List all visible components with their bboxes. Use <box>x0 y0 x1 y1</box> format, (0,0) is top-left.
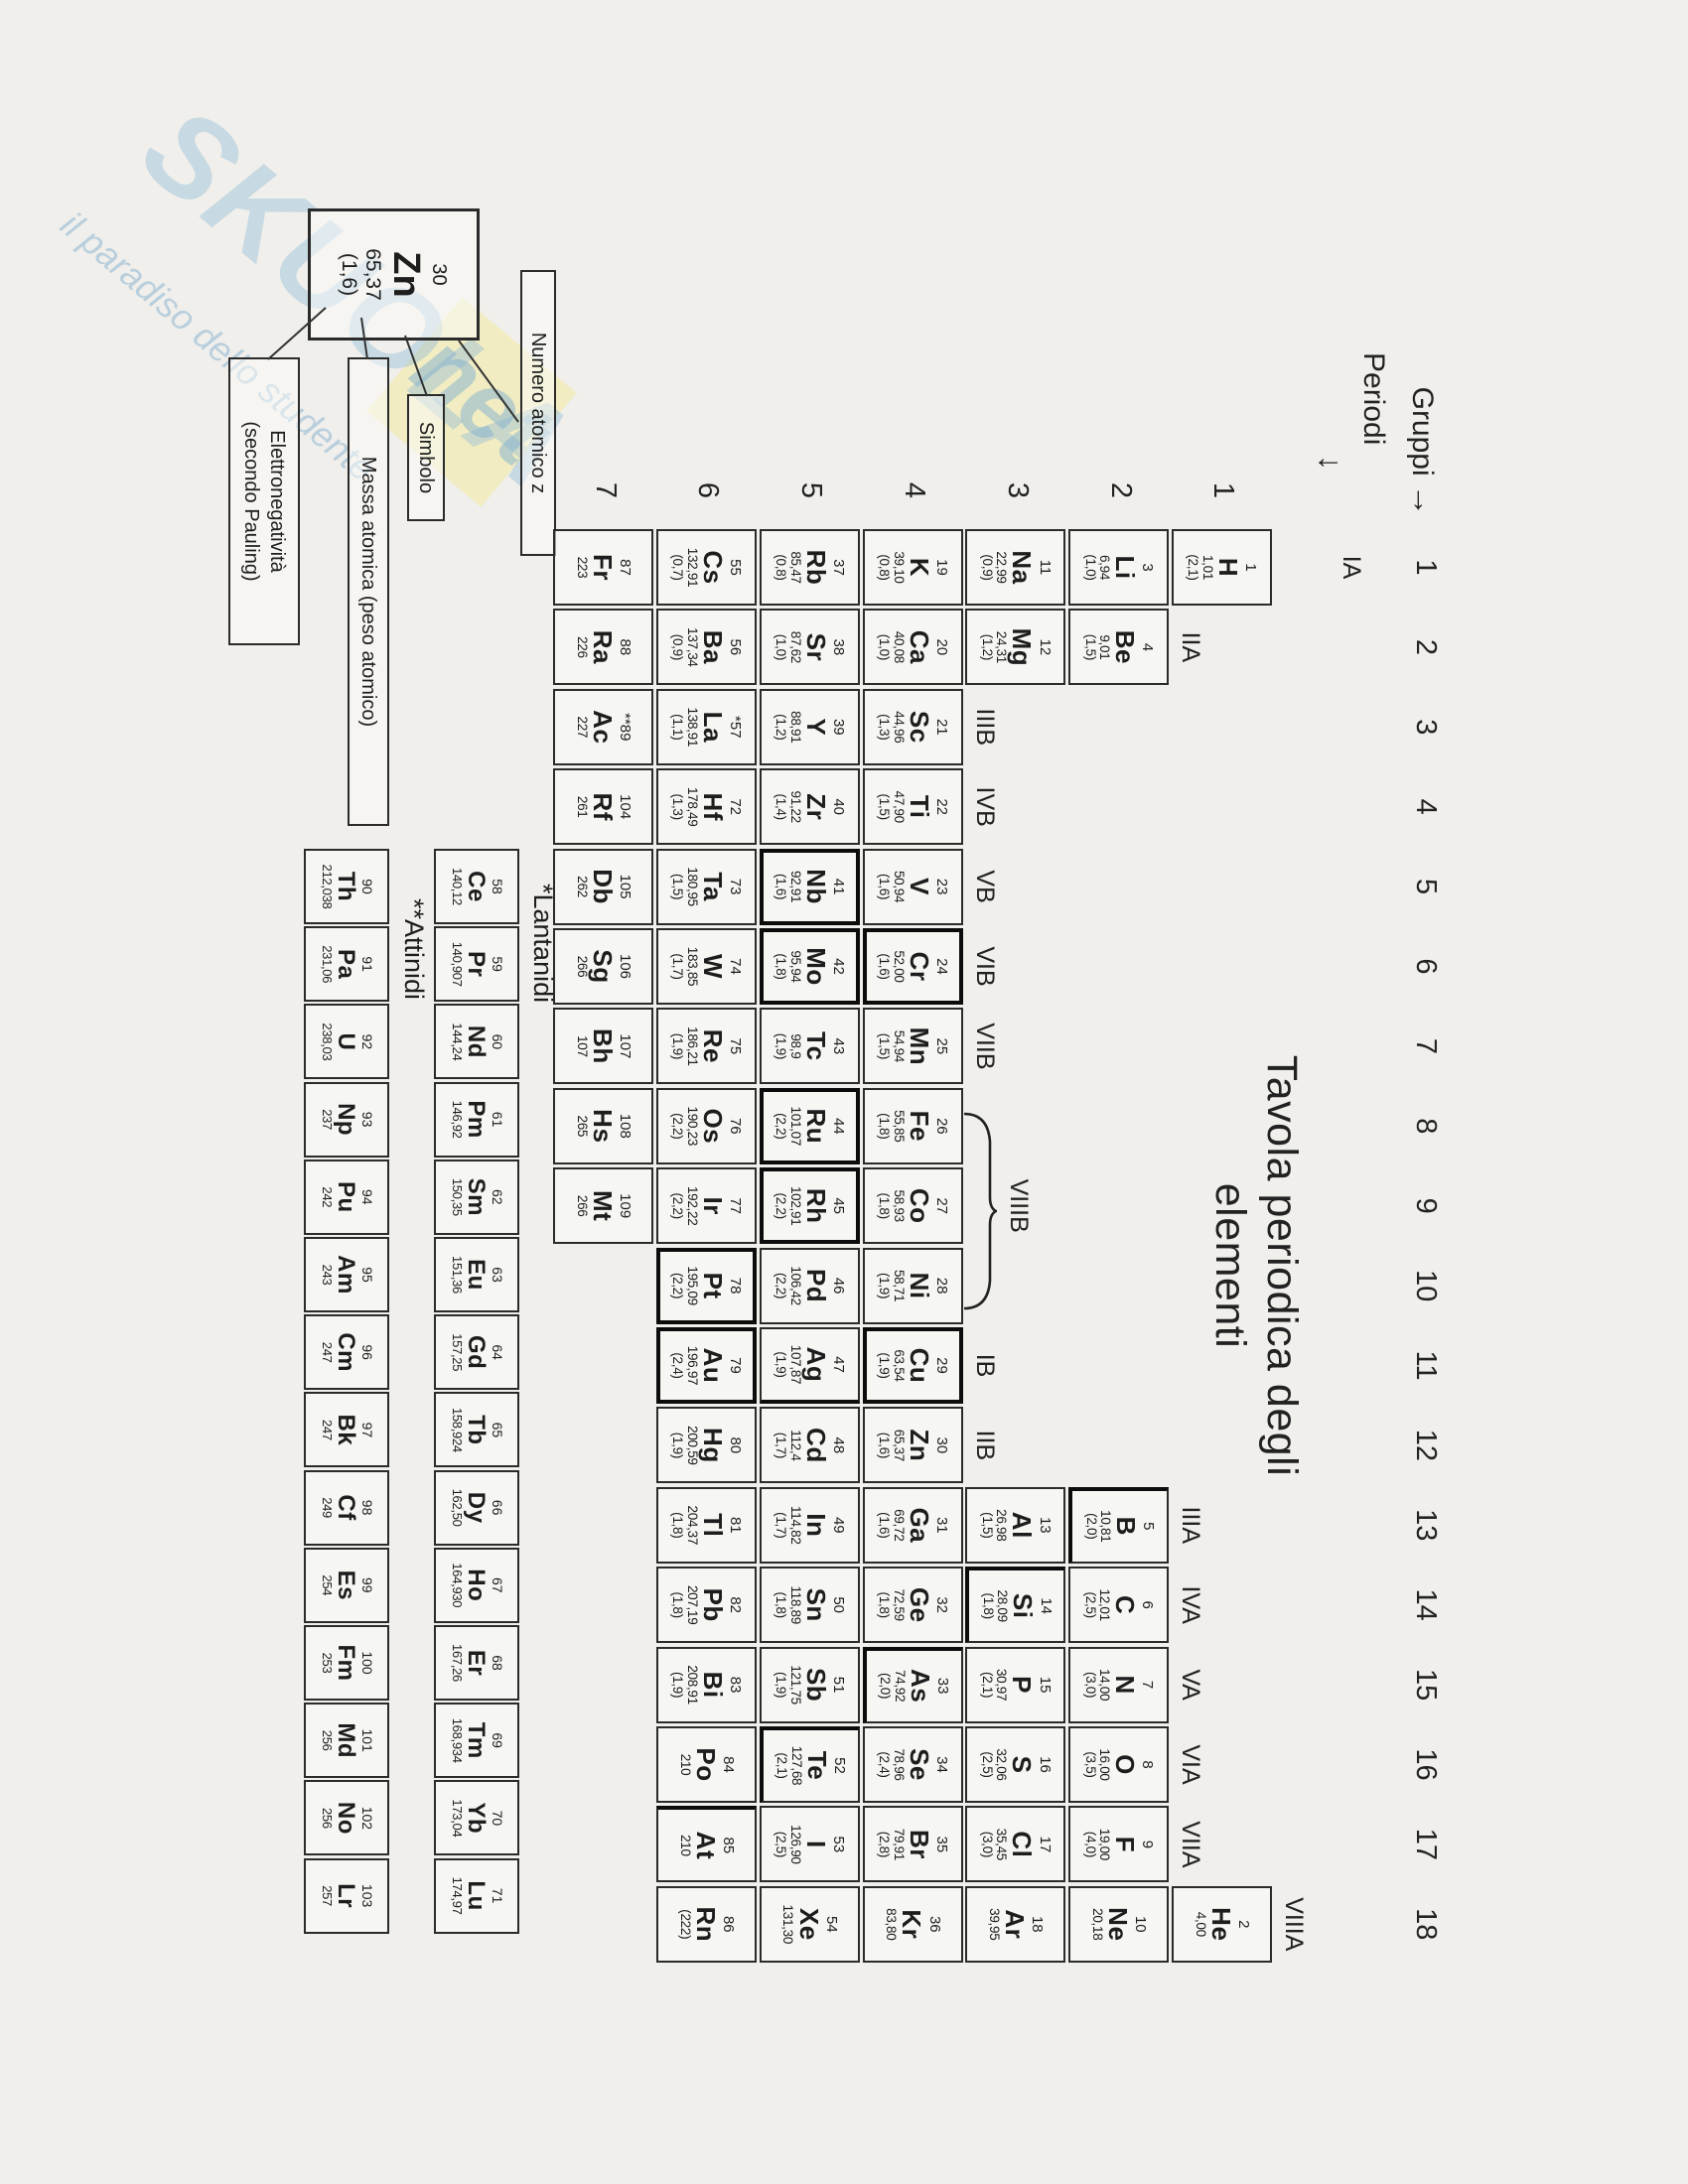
element-In-sym: In <box>802 1513 830 1537</box>
element-Ge-en: (1,8) <box>876 1592 891 1618</box>
element-Cd-sym: Cd <box>802 1428 830 1463</box>
element-V-z: 23 <box>933 879 949 895</box>
element-Sb-sym: Sb <box>802 1668 830 1702</box>
element-Pt-mass: 195,09 <box>684 1266 699 1305</box>
element-Fr: 87Fr223 <box>553 529 653 606</box>
element-Md: 101Md256 <box>304 1703 389 1778</box>
element-Bh: 107Bh107 <box>553 1008 653 1084</box>
element-Hf-sym: Hf <box>699 792 727 820</box>
element-Er-z: 68 <box>489 1655 503 1671</box>
element-Cl-z: 17 <box>1036 1837 1052 1853</box>
element-Cs-en: (0,7) <box>670 554 685 580</box>
element-C: 6C12,01(2,5) <box>1068 1567 1169 1643</box>
element-Cr-en: (1,6) <box>876 953 891 979</box>
element-He-mass: 4,00 <box>1193 1912 1207 1937</box>
element-Ru: 44Ru101,07(2,2) <box>760 1088 860 1164</box>
element-Bi-mass: 208,91 <box>684 1665 699 1705</box>
element-Sn: 50Sn118,89(1,8) <box>760 1567 860 1643</box>
element-Lr-mass: 257 <box>319 1885 333 1906</box>
element-Ru-mass: 101,07 <box>787 1107 802 1147</box>
element-Xe-sym: Xe <box>794 1908 822 1941</box>
element-Ir: 77Ir192,22(2,2) <box>656 1167 757 1244</box>
element-Si-sym: Si <box>1009 1593 1037 1619</box>
element-Yb-z: 70 <box>489 1811 503 1827</box>
element-C-mass: 12,01 <box>1097 1589 1112 1621</box>
element-Rh-sym: Rh <box>802 1188 830 1224</box>
element-Ti-en: (1,5) <box>876 794 891 820</box>
element-Br-z: 35 <box>933 1837 949 1853</box>
element-Hg: 80Hg200,59(1,9) <box>656 1407 757 1483</box>
element-Zr-en: (1,4) <box>774 794 788 820</box>
element-V-en: (1,6) <box>876 874 891 899</box>
element-K-en: (0,8) <box>876 554 891 580</box>
element-Ac-mass: 227 <box>574 716 589 738</box>
element-Pt-z: 78 <box>727 1278 743 1295</box>
element-Tb-mass: 158,924 <box>449 1408 463 1452</box>
element-O-en: (3,5) <box>1082 1751 1097 1777</box>
element-Li: 3Li6,94(1,0) <box>1068 529 1169 606</box>
element-Y-sym: Y <box>802 718 830 736</box>
element-Ni: 28Ni58,71(1,9) <box>863 1248 963 1324</box>
element-Sc-en: (1,3) <box>876 714 891 740</box>
element-Bk: 97Bk247 <box>304 1392 389 1467</box>
element-Sr: 38Sr87,62(1,0) <box>760 609 860 685</box>
element-C-z: 6 <box>1139 1601 1155 1609</box>
element-As-en: (2,0) <box>877 1673 892 1699</box>
element-Re: 75Re186,21(1,9) <box>656 1008 757 1084</box>
group-number-16: 16 <box>1409 1743 1442 1787</box>
element-Ba-z: 56 <box>727 639 743 656</box>
element-Ce-mass: 140,12 <box>449 868 463 905</box>
element-Br-en: (2,8) <box>876 1832 891 1857</box>
element-Sc: 21Sc44,96(1,3) <box>863 689 963 765</box>
element-Si: 14Si28,09(1,8) <box>965 1567 1065 1643</box>
element-Hg-mass: 200,59 <box>684 1426 699 1465</box>
element-Dy: 66Dy162,50 <box>434 1470 519 1546</box>
element-Cf-z: 98 <box>358 1500 373 1516</box>
element-Li-en: (1,0) <box>1082 554 1097 580</box>
element-Tm: 69Tm168,934 <box>434 1703 519 1778</box>
element-Zn-en: (1,6) <box>876 1433 891 1458</box>
element-I-en: (2,5) <box>774 1832 788 1857</box>
element-Sm: 62Sm150,35 <box>434 1160 519 1235</box>
element-Ti-sym: Ti <box>906 795 933 819</box>
element-Mn-sym: Mn <box>906 1027 933 1066</box>
element-N-mass: 14,00 <box>1097 1669 1112 1701</box>
element-Zn-z: 30 <box>933 1437 949 1454</box>
element-Rh-mass: 102,91 <box>787 1186 802 1226</box>
element-Tb: 65Tb158,924 <box>434 1392 519 1467</box>
element-C-en: (2,5) <box>1082 1592 1097 1618</box>
element-Lr-sym: Lr <box>334 1883 359 1908</box>
element-Ru-z: 44 <box>830 1118 846 1135</box>
element-Cf-mass: 249 <box>319 1497 333 1518</box>
element-Zn-sym: Zn <box>906 1430 933 1462</box>
element-Am-mass: 243 <box>319 1265 333 1286</box>
element-La-mass: 138,91 <box>684 708 699 748</box>
element-Tm-z: 69 <box>489 1732 503 1748</box>
element-Bi-z: 83 <box>727 1677 743 1694</box>
element-Ca-sym: Ca <box>906 630 933 664</box>
element-Po-sym: Po <box>692 1747 720 1781</box>
element-Eu: 63Eu151,36 <box>434 1237 519 1312</box>
element-Fm-mass: 253 <box>319 1653 333 1674</box>
element-U-z: 92 <box>358 1034 373 1050</box>
element-H-mass: 1,01 <box>1199 555 1214 580</box>
element-Cr-mass: 52,00 <box>891 950 906 982</box>
element-La-en: (1,1) <box>670 714 685 740</box>
group-number-7: 7 <box>1409 1024 1442 1068</box>
element-Au-sym: Au <box>699 1348 727 1384</box>
element-Sc-mass: 44,96 <box>891 711 906 743</box>
element-Kr-z: 36 <box>925 1916 941 1933</box>
element-Cl: 17Cl35,45(3,0) <box>965 1806 1065 1882</box>
element-Pm-mass: 146,92 <box>449 1101 463 1139</box>
element-Bk-sym: Bk <box>334 1415 359 1446</box>
element-Ga-mass: 69,72 <box>891 1509 906 1541</box>
element-Dy-mass: 162,50 <box>449 1489 463 1527</box>
element-Ge: 32Ge72,59(1,8) <box>863 1567 963 1643</box>
element-B-en: (2,0) <box>1083 1513 1098 1539</box>
element-Er: 68Er167,26 <box>434 1625 519 1701</box>
element-Db-sym: Db <box>589 869 617 904</box>
element-Kr-sym: Kr <box>898 1909 925 1939</box>
element-Ar: 18Ar39,95 <box>965 1886 1065 1963</box>
element-P-en: (2,1) <box>979 1672 994 1698</box>
element-Pb-sym: Pb <box>699 1588 727 1622</box>
element-Pu-z: 94 <box>358 1189 373 1205</box>
element-Si-en: (1,8) <box>980 1593 995 1619</box>
element-P: 15P30,97(2,1) <box>965 1647 1065 1723</box>
element-Mo-mass: 95,94 <box>787 950 802 982</box>
element-Te-mass: 127,68 <box>788 1746 803 1786</box>
element-Pt: 78Pt195,09(2,2) <box>656 1248 757 1324</box>
element-Md-z: 101 <box>358 1729 373 1752</box>
element-Cs-mass: 132,91 <box>684 548 699 588</box>
element-W-sym: W <box>699 954 727 979</box>
period-number-7: 7 <box>589 429 622 498</box>
element-Cr-sym: Cr <box>906 952 933 982</box>
element-Bi-sym: Bi <box>699 1672 727 1699</box>
element-Al-en: (1,5) <box>979 1512 994 1538</box>
element-S: 16S32,06(2,5) <box>965 1726 1065 1803</box>
element-Ga-z: 31 <box>933 1517 949 1534</box>
element-In-mass: 114,82 <box>787 1506 802 1545</box>
element-S-sym: S <box>1008 1756 1036 1774</box>
element-Ta-en: (1,5) <box>670 874 685 899</box>
element-Hs-z: 108 <box>617 1114 633 1139</box>
element-Ga-sym: Ga <box>906 1507 933 1543</box>
element-Rb-z: 37 <box>830 559 846 576</box>
element-Ge-z: 32 <box>933 1596 949 1613</box>
element-Au-z: 79 <box>727 1357 743 1374</box>
element-Hf: 72Hf178,49(1,3) <box>656 768 757 845</box>
element-Ra-mass: 226 <box>574 636 589 658</box>
element-Ti: 22Ti47,90(1,5) <box>863 768 963 845</box>
element-Gd-sym: Gd <box>464 1335 490 1369</box>
element-Ba-sym: Ba <box>699 630 727 664</box>
element-Ar-mass: 39,95 <box>986 1908 1001 1940</box>
element-Be-en: (1,5) <box>1082 634 1097 660</box>
element-B-sym: B <box>1112 1517 1140 1536</box>
element-Ag: 47Ag107,87(1,9) <box>760 1327 860 1404</box>
element-Rh: 45Rh102,91(2,2) <box>760 1167 860 1244</box>
element-As-mass: 74,92 <box>892 1670 907 1702</box>
group-number-18: 18 <box>1409 1902 1442 1946</box>
element-Rh-z: 45 <box>830 1197 846 1214</box>
element-S-mass: 32,06 <box>994 1748 1009 1780</box>
element-He-sym: He <box>1207 1907 1235 1941</box>
element-Br-sym: Br <box>906 1830 933 1859</box>
element-Te-en: (2,1) <box>774 1752 789 1778</box>
element-Fe-mass: 55,85 <box>891 1110 906 1142</box>
element-Db: 105Db262 <box>553 849 653 925</box>
element-Cd-mass: 112,4 <box>787 1430 802 1460</box>
element-La: *57La138,91(1,1) <box>656 689 757 765</box>
element-Rb-mass: 85,47 <box>787 551 802 583</box>
element-F-sym: F <box>1111 1837 1139 1852</box>
element-Sn-mass: 118,89 <box>787 1585 802 1624</box>
element-K-z: 19 <box>933 559 949 576</box>
element-He-z: 2 <box>1235 1920 1251 1928</box>
element-Ba-mass: 137,34 <box>684 627 699 667</box>
element-Sr-en: (1,0) <box>774 634 788 660</box>
element-Pb: 82Pb207,19(1,8) <box>656 1567 757 1643</box>
element-Re-en: (1,9) <box>670 1033 685 1059</box>
page-title-line1: Tavola periodica degli <box>1256 1018 1308 1514</box>
gruppi-label: Gruppi <box>1406 387 1439 477</box>
element-Re-sym: Re <box>699 1029 727 1063</box>
element-Y-mass: 88,91 <box>787 711 802 743</box>
element-H: 1H1,01(2,1) <box>1172 529 1272 606</box>
element-Pr-sym: Pr <box>464 951 490 977</box>
element-Am-z: 95 <box>358 1267 373 1283</box>
element-Es-mass: 254 <box>319 1574 333 1595</box>
element-Cf: 98Cf249 <box>304 1470 389 1546</box>
element-Fe-sym: Fe <box>906 1111 933 1142</box>
element-Fr-z: 87 <box>617 559 633 576</box>
element-Ho: 67Ho164,930 <box>434 1548 519 1623</box>
element-Co-en: (1,8) <box>876 1193 891 1219</box>
element-K: 19K39,10(0,8) <box>863 529 963 606</box>
element-In: 49In114,82(1,7) <box>760 1487 860 1564</box>
element-Tm-sym: Tm <box>464 1722 490 1759</box>
element-Mo: 42Mo95,94(1,8) <box>760 928 860 1005</box>
element-Fe-z: 26 <box>933 1118 949 1135</box>
element-Ac-z: **89 <box>617 713 633 741</box>
element-Bk-mass: 247 <box>319 1420 333 1440</box>
element-Nb-z: 41 <box>830 879 846 895</box>
element-Re-mass: 186,21 <box>684 1026 699 1066</box>
element-Ne-sym: Ne <box>1104 1907 1132 1941</box>
viiib-brace <box>961 1110 997 1312</box>
element-Co-sym: Co <box>906 1188 933 1224</box>
element-Ra: 88Ra226 <box>553 609 653 685</box>
element-Fr-sym: Fr <box>589 554 617 581</box>
element-Xe-z: 54 <box>823 1916 839 1933</box>
element-Ge-mass: 72,59 <box>891 1589 906 1621</box>
element-Eu-mass: 151,36 <box>449 1256 463 1294</box>
element-Cl-en: (3,0) <box>979 1832 994 1857</box>
element-Ra-sym: Ra <box>589 630 617 664</box>
element-Te-z: 52 <box>831 1757 847 1774</box>
period-number-2: 2 <box>1104 429 1137 498</box>
element-Ce: 58Ce140,12 <box>434 849 519 924</box>
element-F-mass: 19,00 <box>1097 1829 1112 1860</box>
element-Ho-sym: Ho <box>464 1569 490 1601</box>
element-Ta-mass: 180,95 <box>684 867 699 906</box>
element-Po-mass: 210 <box>677 1754 692 1776</box>
element-Ho-mass: 164,930 <box>449 1563 463 1607</box>
element-As: 33As74,92(2,0) <box>863 1647 963 1723</box>
element-Rf-mass: 261 <box>574 796 589 818</box>
element-Sg: 106Sg266 <box>553 928 653 1005</box>
gruppi-header: Gruppi → <box>1405 288 1442 516</box>
element-Ru-sym: Ru <box>802 1108 830 1144</box>
element-Pt-en: (2,2) <box>670 1273 685 1298</box>
element-N: 7N14,00(3,0) <box>1068 1647 1169 1723</box>
group-number-13: 13 <box>1409 1503 1442 1547</box>
element-Pm-z: 61 <box>489 1112 503 1128</box>
group-number-6: 6 <box>1409 945 1442 989</box>
element-At-sym: At <box>692 1832 720 1859</box>
element-Ce-z: 58 <box>489 879 503 894</box>
element-Cm: 96Cm247 <box>304 1314 389 1390</box>
element-U-sym: U <box>334 1032 359 1050</box>
element-Hf-mass: 178,49 <box>684 787 699 827</box>
element-Ir-en: (2,2) <box>670 1193 685 1219</box>
element-Po-z: 84 <box>720 1756 736 1773</box>
element-Tc-z: 43 <box>830 1038 846 1055</box>
element-Np-sym: Np <box>334 1103 359 1136</box>
element-Pu: 94Pu242 <box>304 1160 389 1235</box>
element-Sr-z: 38 <box>830 639 846 656</box>
element-Tm-mass: 168,934 <box>449 1718 463 1763</box>
element-Ne-mass: 20,18 <box>1089 1908 1104 1940</box>
period-number-3: 3 <box>1001 429 1034 498</box>
element-Ir-mass: 192,22 <box>684 1186 699 1226</box>
element-Th-z: 90 <box>358 879 373 894</box>
element-No: 102No256 <box>304 1780 389 1855</box>
element-Tb-sym: Tb <box>464 1415 490 1444</box>
element-Fm: 100Fm253 <box>304 1625 389 1701</box>
element-P-mass: 30,97 <box>994 1669 1009 1701</box>
element-Ba: 56Ba137,34(0,9) <box>656 609 757 685</box>
element-At-z: 85 <box>720 1838 736 1854</box>
element-U: 92U238,03 <box>304 1004 389 1079</box>
group-number-14: 14 <box>1409 1583 1442 1627</box>
element-I: 53I126,90(2,5) <box>760 1806 860 1882</box>
element-I-mass: 126,90 <box>787 1825 802 1864</box>
element-Pa-mass: 231,06 <box>319 945 333 983</box>
element-Sg-z: 106 <box>617 954 633 979</box>
element-O-sym: O <box>1111 1754 1139 1775</box>
element-Hf-en: (1,3) <box>670 794 685 820</box>
element-Se: 34Se78,96(2,4) <box>863 1726 963 1803</box>
element-Be-mass: 9,01 <box>1097 634 1112 659</box>
element-Y: 39Y88,91(1,2) <box>760 689 860 765</box>
element-Br: 35Br79,91(2,8) <box>863 1806 963 1882</box>
element-Au: 79Au196,97(2,4) <box>656 1327 757 1404</box>
element-Os: 76Os190,23(2,2) <box>656 1088 757 1164</box>
element-P-sym: P <box>1008 1676 1036 1694</box>
element-Np-mass: 237 <box>319 1109 333 1130</box>
element-Hs: 108Hs265 <box>553 1088 653 1164</box>
element-W: 74W183,85(1,7) <box>656 928 757 1005</box>
element-Co-z: 27 <box>933 1197 949 1214</box>
element-Os-sym: Os <box>699 1108 727 1144</box>
element-Ag-sym: Ag <box>802 1347 830 1383</box>
element-Pd-mass: 106,42 <box>787 1266 802 1305</box>
element-Ar-sym: Ar <box>1001 1909 1029 1939</box>
element-Ta-z: 73 <box>727 879 743 895</box>
element-Sm-z: 62 <box>489 1189 503 1205</box>
group-label-VIIB: VIIB <box>969 987 999 1106</box>
element-Mt-sym: Mt <box>589 1190 617 1221</box>
element-Ga: 31Ga69,72(1,6) <box>863 1487 963 1564</box>
element-Eu-sym: Eu <box>464 1259 490 1291</box>
element-Sr-sym: Sr <box>802 633 830 661</box>
element-Pd-en: (2,2) <box>774 1273 788 1298</box>
element-Mn-mass: 54,94 <box>891 1030 906 1062</box>
element-Yb-mass: 173,04 <box>449 1799 463 1837</box>
element-W-en: (1,7) <box>670 953 685 979</box>
element-B-z: 5 <box>1140 1522 1156 1530</box>
element-Al: 13Al26,98(1,5) <box>965 1487 1065 1564</box>
element-Rn-sym: Rn <box>692 1906 720 1942</box>
element-Ni-en: (1,9) <box>876 1273 891 1298</box>
element-Ni-z: 28 <box>933 1278 949 1295</box>
element-Ne-z: 10 <box>1132 1916 1148 1933</box>
element-F-en: (4,0) <box>1082 1832 1097 1857</box>
element-N-z: 7 <box>1139 1681 1155 1689</box>
element-Pt-sym: Pt <box>699 1273 727 1299</box>
element-Ac-sym: Ac <box>589 710 617 744</box>
element-Rb: 37Rb85,47(0,8) <box>760 529 860 606</box>
element-Ne: 10Ne20,18 <box>1068 1886 1169 1963</box>
element-Tc-mass: 98,9 <box>787 1033 802 1058</box>
element-Db-mass: 262 <box>574 876 589 897</box>
group-number-3: 3 <box>1409 705 1442 749</box>
period-number-5: 5 <box>794 429 827 498</box>
element-Mn: 25Mn54,94(1,5) <box>863 1008 963 1084</box>
element-In-z: 49 <box>830 1517 846 1534</box>
element-Pa-z: 91 <box>358 956 373 972</box>
element-Sb: 51Sb121,75(1,9) <box>760 1647 860 1723</box>
element-Sc-z: 21 <box>933 719 949 736</box>
element-Hg-en: (1,9) <box>670 1433 685 1458</box>
element-Cs: 55Cs132,91(0,7) <box>656 529 757 606</box>
element-Ti-z: 22 <box>933 798 949 815</box>
element-Sn-sym: Sn <box>802 1588 830 1622</box>
element-U-mass: 238,03 <box>319 1023 333 1060</box>
group-number-10: 10 <box>1409 1264 1442 1307</box>
element-Nb-en: (1,6) <box>774 874 788 899</box>
element-Zn-mass: 65,37 <box>891 1430 906 1461</box>
element-Ba-en: (0,9) <box>670 634 685 660</box>
element-Cf-sym: Cf <box>334 1494 359 1520</box>
element-Be-z: 4 <box>1139 643 1155 651</box>
element-Pu-mass: 242 <box>319 1186 333 1207</box>
element-Sb-z: 51 <box>830 1677 846 1694</box>
element-Ca-z: 20 <box>933 639 949 656</box>
element-Ir-z: 77 <box>727 1197 743 1214</box>
element-Na: 11Na22,99(0,9) <box>965 529 1065 606</box>
element-V-mass: 50,94 <box>891 871 906 902</box>
element-Hg-sym: Hg <box>699 1428 727 1463</box>
period-number-4: 4 <box>898 429 930 498</box>
element-Au-en: (2,4) <box>670 1352 685 1378</box>
